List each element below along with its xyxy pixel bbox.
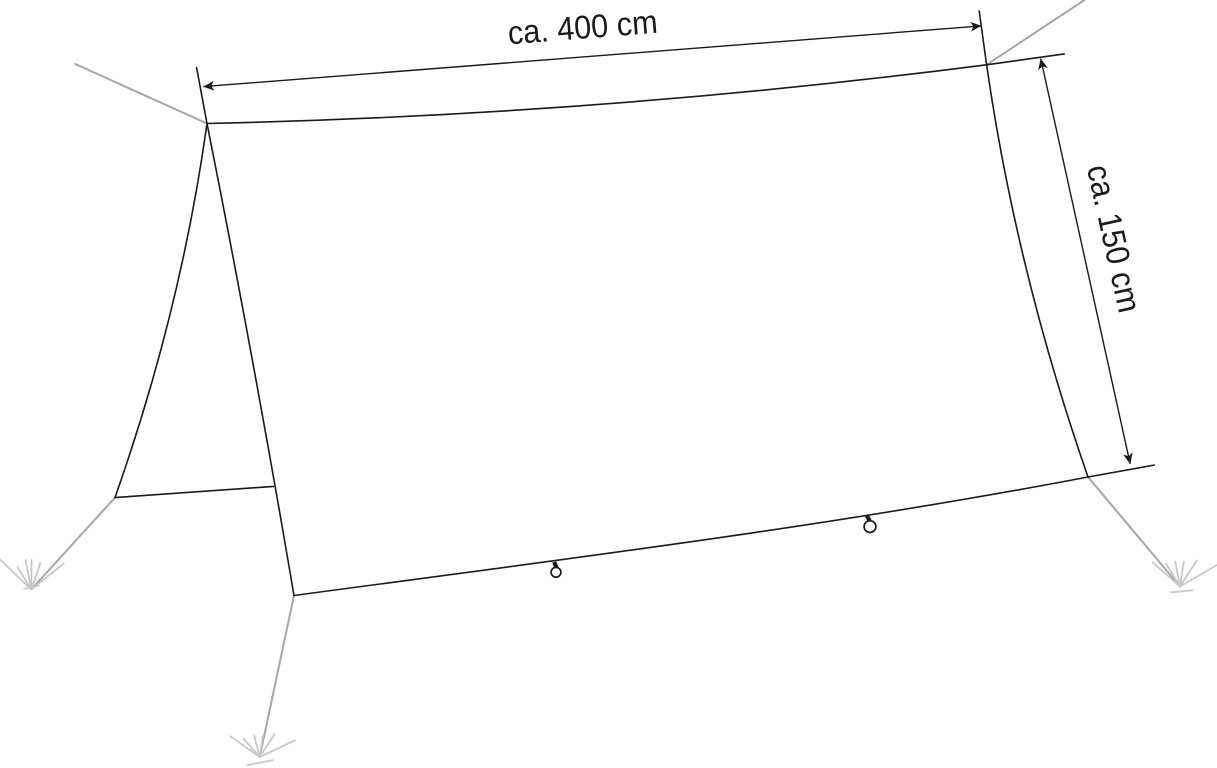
svg-text:ca. 400 cm: ca. 400 cm bbox=[506, 3, 659, 52]
svg-text:ca. 150 cm: ca. 150 cm bbox=[1080, 161, 1149, 316]
